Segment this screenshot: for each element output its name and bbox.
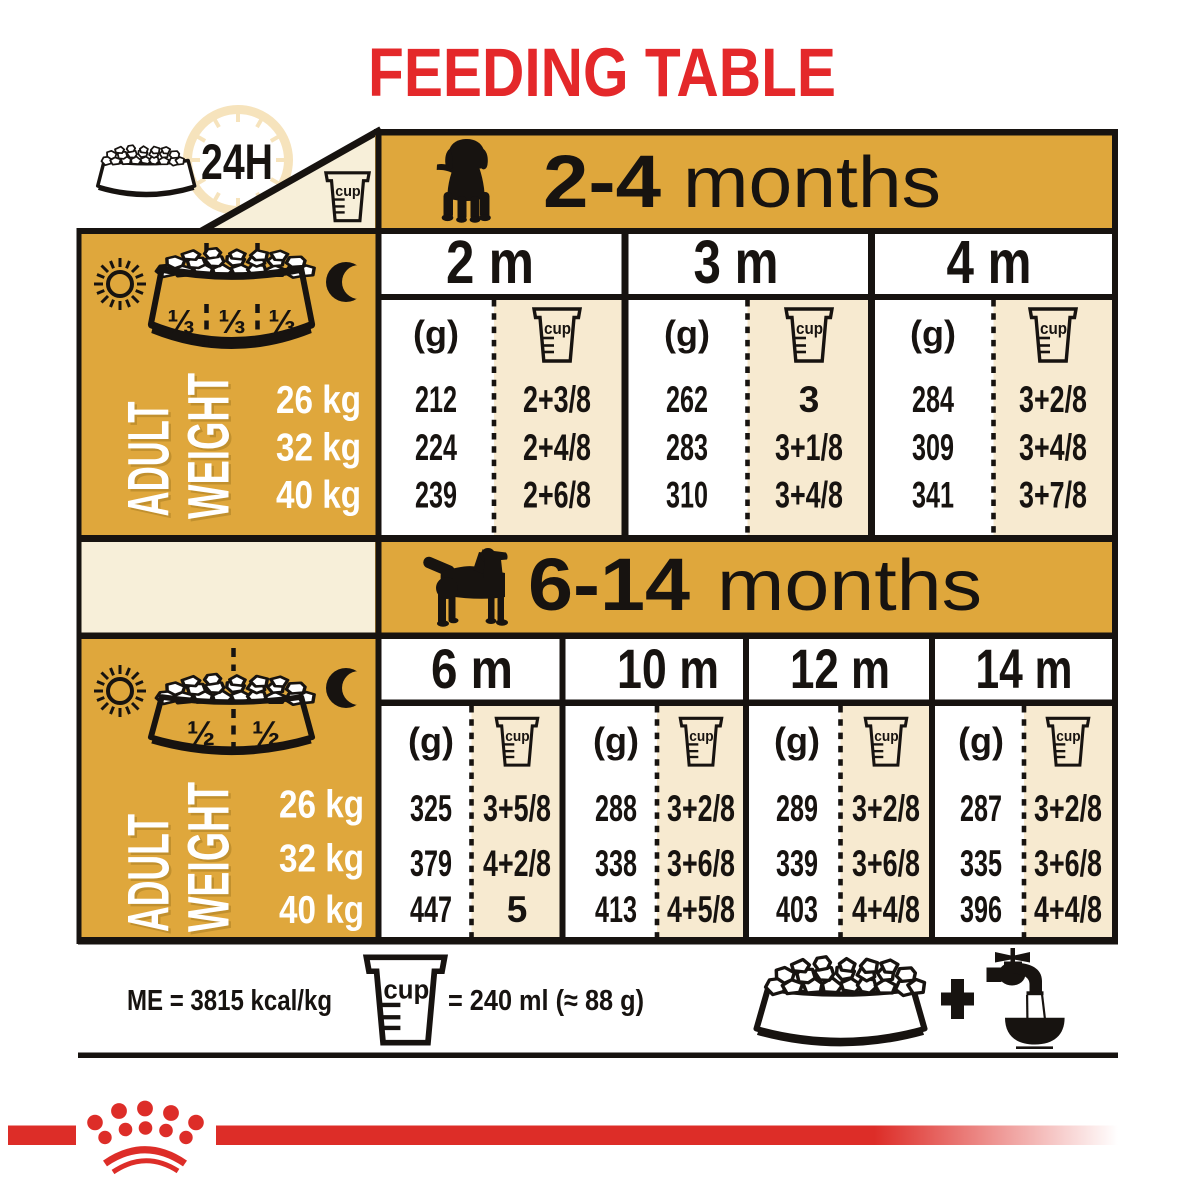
svg-text:2+6/8: 2+6/8 (523, 475, 591, 516)
svg-text:4+5/8: 4+5/8 (667, 889, 735, 930)
svg-text:24H: 24H (201, 134, 273, 190)
svg-text:4+2/8: 4+2/8 (483, 843, 551, 884)
svg-text:224: 224 (415, 427, 457, 468)
svg-text:341: 341 (912, 475, 954, 516)
svg-text:32 kg: 32 kg (276, 427, 361, 470)
svg-text:(g): (g) (408, 720, 454, 761)
svg-text:335: 335 (960, 843, 1002, 884)
svg-text:3+4/8: 3+4/8 (1019, 427, 1087, 468)
svg-text:6 m: 6 m (431, 637, 513, 700)
svg-text:3+5/8: 3+5/8 (483, 788, 551, 829)
svg-text:289: 289 (776, 788, 818, 829)
svg-text:3+6/8: 3+6/8 (667, 843, 735, 884)
svg-text:3+2/8: 3+2/8 (667, 788, 735, 829)
svg-text:½: ½ (187, 715, 215, 753)
svg-text:3+6/8: 3+6/8 (852, 843, 920, 884)
svg-text:ADULT: ADULT (117, 814, 182, 932)
svg-text:⅓: ⅓ (167, 303, 195, 340)
svg-text:WEIGHT: WEIGHT (177, 373, 242, 519)
svg-text:14 m: 14 m (976, 637, 1073, 700)
svg-text:4+4/8: 4+4/8 (852, 889, 920, 930)
svg-text:(g): (g) (958, 720, 1004, 761)
svg-text:= 240 ml (≈ 88 g): = 240 ml (≈ 88 g) (448, 985, 644, 1017)
svg-text:262: 262 (666, 379, 708, 420)
svg-text:2+3/8: 2+3/8 (523, 379, 591, 420)
svg-text:3+7/8: 3+7/8 (1019, 475, 1087, 516)
svg-text:months: months (717, 546, 982, 626)
svg-text:325: 325 (410, 788, 452, 829)
svg-text:288: 288 (595, 788, 637, 829)
svg-text:3+4/8: 3+4/8 (775, 475, 843, 516)
svg-text:(g): (g) (774, 720, 820, 761)
svg-text:338: 338 (595, 843, 637, 884)
svg-text:4+4/8: 4+4/8 (1034, 889, 1102, 930)
svg-text:months: months (683, 143, 941, 223)
svg-text:309: 309 (912, 427, 954, 468)
svg-text:5: 5 (507, 889, 528, 930)
svg-text:26 kg: 26 kg (276, 379, 361, 422)
svg-text:(g): (g) (593, 720, 639, 761)
svg-text:½: ½ (252, 715, 280, 753)
svg-text:283: 283 (666, 427, 708, 468)
svg-text:(g): (g) (664, 313, 710, 354)
svg-text:(g): (g) (910, 313, 956, 354)
svg-text:3+6/8: 3+6/8 (1034, 843, 1102, 884)
svg-text:2 m: 2 m (446, 228, 534, 296)
svg-text:447: 447 (410, 889, 452, 930)
svg-text:⅓: ⅓ (268, 303, 296, 340)
svg-text:FEEDING TABLE: FEEDING TABLE (368, 34, 836, 111)
svg-text:403: 403 (776, 889, 818, 930)
svg-text:2+4/8: 2+4/8 (523, 427, 591, 468)
svg-text:40 kg: 40 kg (276, 474, 361, 517)
svg-text:6-14: 6-14 (528, 543, 690, 626)
svg-text:339: 339 (776, 843, 818, 884)
svg-text:212: 212 (415, 379, 457, 420)
svg-text:26 kg: 26 kg (279, 784, 364, 827)
svg-text:WEIGHT: WEIGHT (177, 782, 242, 932)
svg-text:284: 284 (912, 379, 954, 420)
svg-text:40 kg: 40 kg (279, 889, 364, 932)
svg-text:413: 413 (595, 889, 637, 930)
svg-text:3+2/8: 3+2/8 (1019, 379, 1087, 420)
svg-text:239: 239 (415, 475, 457, 516)
svg-text:(g): (g) (413, 313, 459, 354)
svg-text:ADULT: ADULT (117, 402, 182, 517)
svg-text:2-4: 2-4 (543, 140, 661, 223)
svg-text:396: 396 (960, 889, 1002, 930)
svg-text:3+2/8: 3+2/8 (1034, 788, 1102, 829)
svg-text:4 m: 4 m (947, 228, 1032, 296)
svg-text:12 m: 12 m (790, 637, 890, 700)
svg-text:287: 287 (960, 788, 1002, 829)
svg-text:3+2/8: 3+2/8 (852, 788, 920, 829)
svg-text:ME = 3815 kcal/kg: ME = 3815 kcal/kg (127, 985, 332, 1017)
svg-text:3 m: 3 m (694, 228, 779, 296)
svg-text:310: 310 (666, 475, 708, 516)
svg-text:⅓: ⅓ (218, 303, 246, 340)
svg-text:32 kg: 32 kg (279, 838, 364, 881)
svg-text:10 m: 10 m (617, 637, 719, 700)
svg-text:3+1/8: 3+1/8 (775, 427, 843, 468)
svg-text:379: 379 (410, 843, 452, 884)
svg-text:3: 3 (799, 379, 820, 420)
